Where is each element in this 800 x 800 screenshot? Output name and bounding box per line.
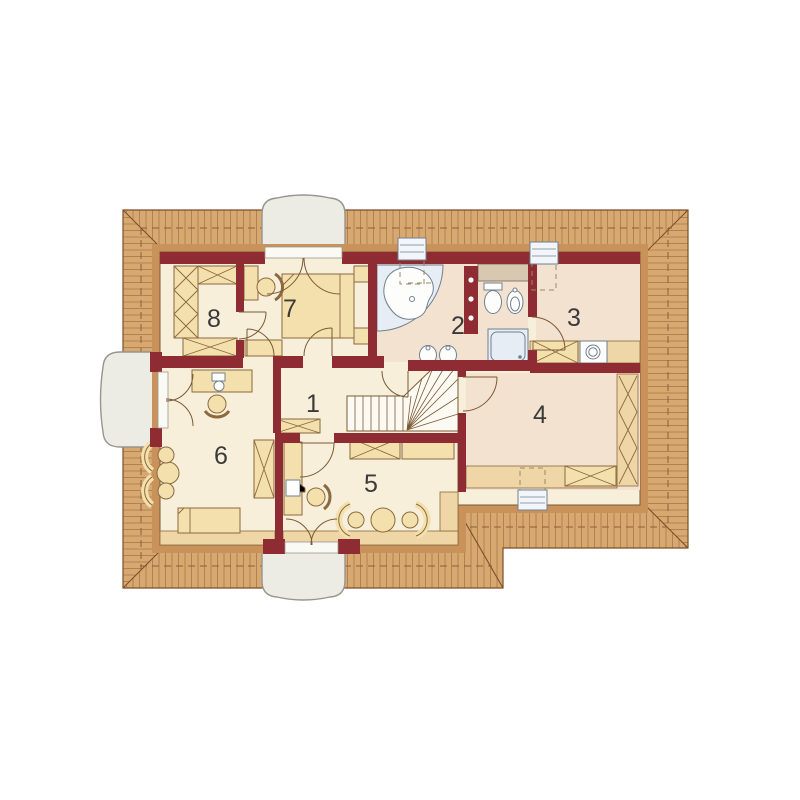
room-label-3: 3 (567, 304, 581, 332)
wall-segment (338, 539, 360, 554)
room-label-7: 7 (283, 295, 297, 323)
desk-icon (284, 442, 305, 515)
room-label-6: 6 (214, 442, 228, 470)
wall-segment (275, 433, 283, 545)
floor-plan-drawing: 1 2 3 4 5 6 7 8 (0, 0, 800, 800)
toilet-icon (484, 283, 502, 314)
knee-band-room5-east (440, 492, 458, 531)
room-label-8: 8 (207, 305, 221, 333)
wall-segment (150, 428, 162, 447)
table-icon (157, 462, 179, 484)
room-label-4: 4 (533, 401, 547, 429)
room-label-2: 2 (451, 312, 465, 340)
wall-segment (334, 433, 466, 443)
wall-segment (408, 360, 530, 371)
wardrobe-icon (254, 440, 274, 498)
shelf-icon (244, 266, 258, 300)
washing-machine-icon (580, 341, 607, 363)
wall-segment (530, 363, 640, 373)
room-label-5: 5 (364, 470, 378, 498)
wall-segment (150, 352, 162, 372)
wall-segment (528, 350, 537, 364)
wall-segment (368, 264, 377, 368)
wardrobe-icon (533, 341, 578, 363)
wall-segment (160, 252, 265, 264)
wall-segment (160, 356, 243, 368)
wall-segment (342, 252, 640, 264)
desk-icon (192, 370, 252, 392)
roof-plane-right (646, 210, 688, 548)
wall-segment (458, 360, 466, 377)
wardrobe-icon (276, 419, 320, 433)
bathroom-counter (478, 264, 531, 281)
bed-icon (178, 508, 240, 533)
wall-segment (236, 264, 244, 312)
dresser-icon (245, 340, 282, 356)
wall-segment (273, 362, 281, 433)
wall-segment (458, 440, 466, 492)
dormer-window-top (262, 195, 345, 252)
wall-segment (236, 340, 244, 358)
wall-segment (263, 539, 285, 554)
wall-segment (281, 433, 300, 443)
table-icon (371, 508, 395, 532)
plumbing-wall (464, 266, 478, 334)
shower-icon (488, 329, 528, 364)
room-label-1: 1 (306, 390, 320, 418)
floor-plan-page: 1 2 3 4 5 6 7 8 (0, 0, 800, 800)
